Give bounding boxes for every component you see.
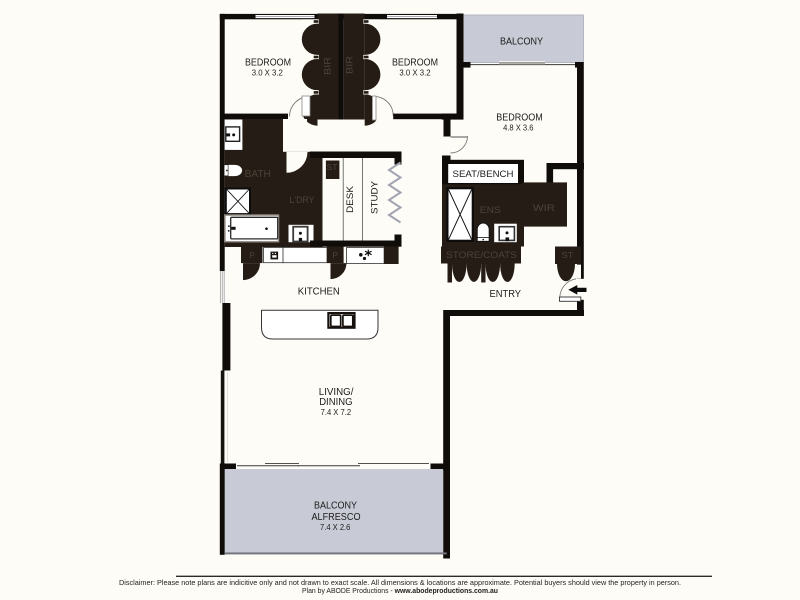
svg-text:Plan by ABODE Productions - ww: Plan by ABODE Productions - www.abodepro… bbox=[302, 586, 498, 595]
svg-text:3.0 X 3.2: 3.0 X 3.2 bbox=[399, 67, 430, 77]
svg-text:7.4 X 7.2: 7.4 X 7.2 bbox=[321, 407, 352, 417]
svg-text:ENS: ENS bbox=[480, 205, 501, 215]
svg-text:L'DRY: L'DRY bbox=[290, 195, 315, 205]
svg-text:WIR: WIR bbox=[533, 203, 555, 213]
svg-text:DESK: DESK bbox=[344, 185, 355, 213]
svg-text:P: P bbox=[249, 250, 255, 260]
svg-text:SEAT/BENCH: SEAT/BENCH bbox=[453, 169, 514, 180]
svg-text:BATH: BATH bbox=[245, 169, 271, 180]
svg-text:BIR: BIR bbox=[323, 57, 333, 75]
svg-text:ST: ST bbox=[327, 163, 338, 172]
svg-text:4.8 X 3.6: 4.8 X 3.6 bbox=[503, 123, 534, 133]
svg-text:KITCHEN: KITCHEN bbox=[298, 287, 340, 298]
svg-text:BIR: BIR bbox=[345, 56, 355, 74]
svg-text:3.0 X 3.2: 3.0 X 3.2 bbox=[252, 67, 283, 77]
svg-text:7.4 X 2.6: 7.4 X 2.6 bbox=[320, 522, 351, 532]
svg-text:BALCONY: BALCONY bbox=[500, 36, 544, 47]
svg-text:STORE/COATS: STORE/COATS bbox=[446, 250, 517, 260]
svg-text:BALCONY: BALCONY bbox=[314, 501, 358, 512]
svg-text:ENTRY: ENTRY bbox=[490, 289, 522, 300]
svg-text:ST: ST bbox=[562, 250, 575, 260]
svg-text:STUDY: STUDY bbox=[369, 180, 380, 214]
svg-text:P: P bbox=[332, 250, 338, 260]
